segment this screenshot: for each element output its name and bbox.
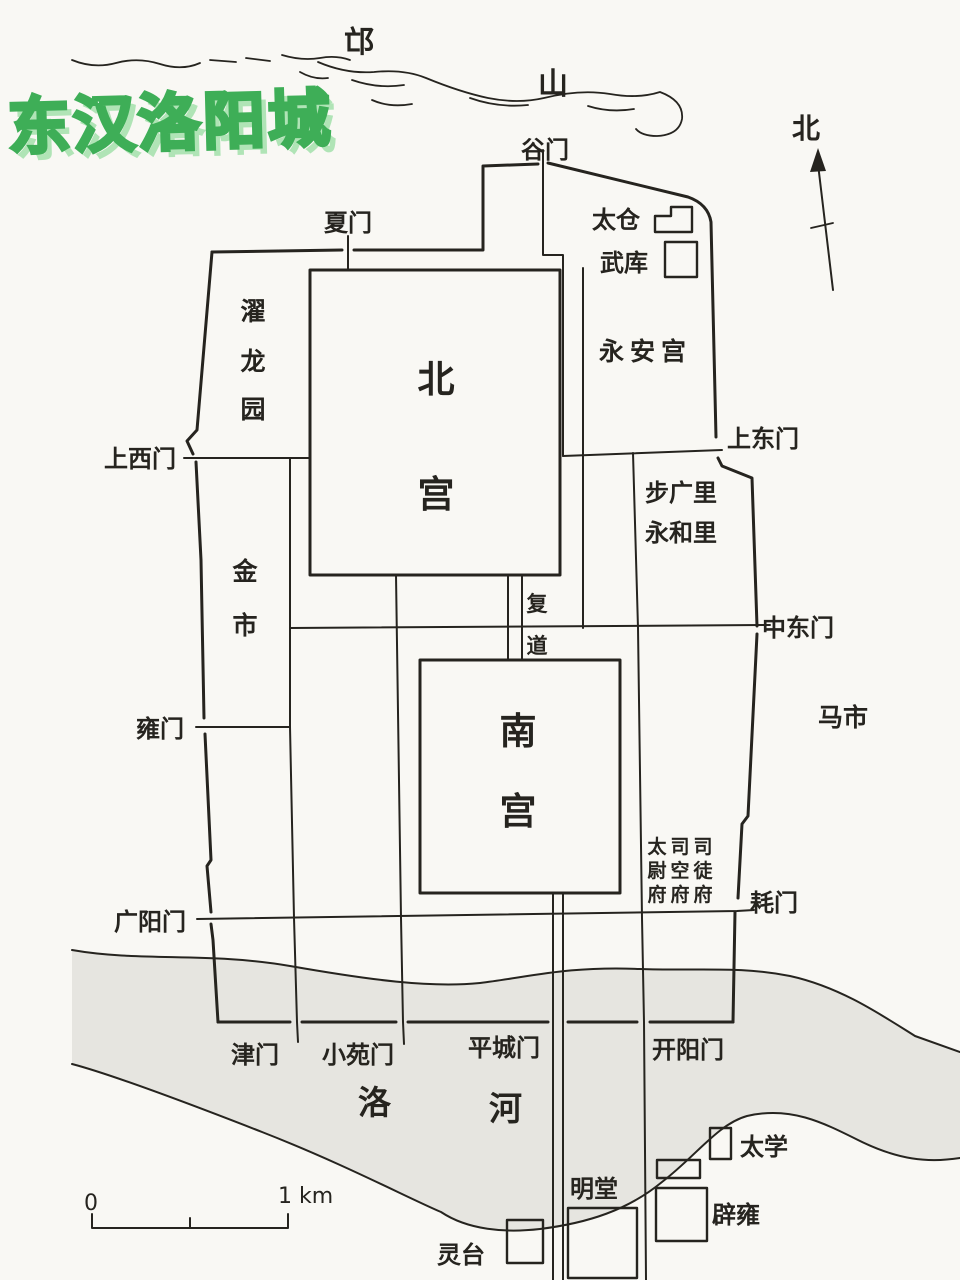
- taicang-building: [655, 207, 692, 232]
- gate-label-xiamen: 夏门: [324, 209, 372, 237]
- svg-text:金: 金: [231, 557, 258, 586]
- district-label-zhuolong-garden: 濯 龙 园: [240, 298, 265, 424]
- building-label-lingtai: 灵台: [437, 1241, 485, 1269]
- svg-text:复: 复: [526, 592, 549, 616]
- compass-north-label: 北: [792, 113, 820, 145]
- south-palace-wall: [420, 660, 620, 893]
- building-label-mingtang: 明堂: [570, 1176, 618, 1203]
- svg-text:北: 北: [418, 360, 455, 401]
- page-title: 东汉洛阳城: [7, 87, 428, 160]
- fudao-elevated-way: [508, 576, 522, 659]
- biyong-building: [656, 1188, 707, 1241]
- label-fudao: 复 道: [526, 592, 549, 658]
- north-arrow: [810, 148, 833, 290]
- office-label-sikong-fu: 司 空 府: [670, 837, 689, 906]
- svg-text:府: 府: [693, 883, 712, 906]
- district-label-buguangli: 步广里: [645, 479, 717, 507]
- district-label-gold-market: 金 市: [231, 557, 258, 640]
- office-label-situ-fu: 司 徒 府: [692, 837, 713, 906]
- scale-zero-label: 0: [84, 1191, 98, 1216]
- luo-river-water: [72, 950, 960, 1231]
- svg-text:龙: 龙: [240, 348, 265, 376]
- zhongdong-men-street: [290, 625, 770, 628]
- gate-label-haomen: 耗门: [750, 889, 798, 917]
- gate-label-shangdongmen: 上东门: [727, 425, 799, 453]
- river-label-he: 河: [489, 1091, 522, 1128]
- gu-men-street: [543, 150, 583, 628]
- svg-text:宫: 宫: [500, 791, 537, 833]
- west-north-south-street: [290, 458, 298, 1042]
- gate-label-pingchengmen: 平城门: [468, 1034, 540, 1062]
- mountain-label-shan: 山: [538, 68, 568, 101]
- building-label-taicang: 太仓: [592, 206, 641, 234]
- office-label-taiwei-fu: 太 尉 府: [647, 835, 667, 906]
- gate-label-guangyangmen: 广阳门: [114, 908, 186, 936]
- gate-label-kaiyangmen: 开阳门: [652, 1036, 724, 1064]
- svg-text:太: 太: [647, 835, 667, 858]
- north-palace-wall: [310, 270, 560, 575]
- scale-1km-label: 1 km: [278, 1184, 333, 1209]
- svg-text:府: 府: [670, 883, 689, 906]
- palace-label-north: 北 宫: [418, 360, 455, 516]
- district-label-yongheli: 永和里: [645, 520, 717, 547]
- palace-label-yongan: 永安宫: [599, 337, 692, 366]
- building-label-taixue: 太学: [740, 1133, 788, 1161]
- gate-label-jinmen: 津门: [231, 1041, 279, 1069]
- svg-text:徒: 徒: [692, 859, 713, 882]
- svg-text:南: 南: [500, 711, 537, 753]
- gate-label-zhongdongmen: 中东门: [762, 614, 834, 642]
- gate-label-gumen: 谷门: [521, 136, 569, 164]
- palace-label-south: 南 宫: [500, 711, 537, 833]
- svg-text:尉: 尉: [647, 859, 666, 882]
- svg-text:府: 府: [647, 883, 666, 906]
- svg-text:空: 空: [670, 859, 689, 882]
- guangyang-hao-street: [197, 910, 754, 919]
- river-label-luo: 洛: [358, 1085, 392, 1122]
- svg-text:濯: 濯: [240, 298, 265, 326]
- scale-bar: [92, 1214, 288, 1228]
- map-canvas: 邙 山 北 谷门 夏门 太仓 武库 永安宫 濯 龙 园 北 宫 上西门 上东门 …: [0, 0, 960, 1280]
- gate-label-shangximen: 上西门: [104, 445, 176, 473]
- xiaoyuan-men-street: [396, 575, 404, 1044]
- svg-text:道: 道: [527, 634, 548, 658]
- building-label-biyong: 辟雍: [712, 1201, 760, 1229]
- svg-text:宫: 宫: [418, 474, 455, 516]
- gate-label-yongmen: 雍门: [136, 715, 184, 743]
- gate-label-xiaoyuanmen: 小苑门: [322, 1041, 394, 1069]
- building-label-wuku: 武库: [600, 250, 648, 277]
- svg-text:司: 司: [693, 837, 712, 858]
- wuku-building: [665, 242, 697, 277]
- svg-text:司: 司: [670, 837, 689, 858]
- map-of-eastern-han-luoyang: 邙 山 北 谷门 夏门 太仓 武库 永安宫 濯 龙 园 北 宫 上西门 上东门 …: [0, 0, 960, 1280]
- svg-text:市: 市: [232, 611, 257, 640]
- district-label-horse-market: 马市: [818, 703, 868, 732]
- svg-text:园: 园: [240, 397, 265, 424]
- shangdong-men-street: [563, 450, 722, 456]
- mountain-label-mang: 邙: [344, 26, 374, 59]
